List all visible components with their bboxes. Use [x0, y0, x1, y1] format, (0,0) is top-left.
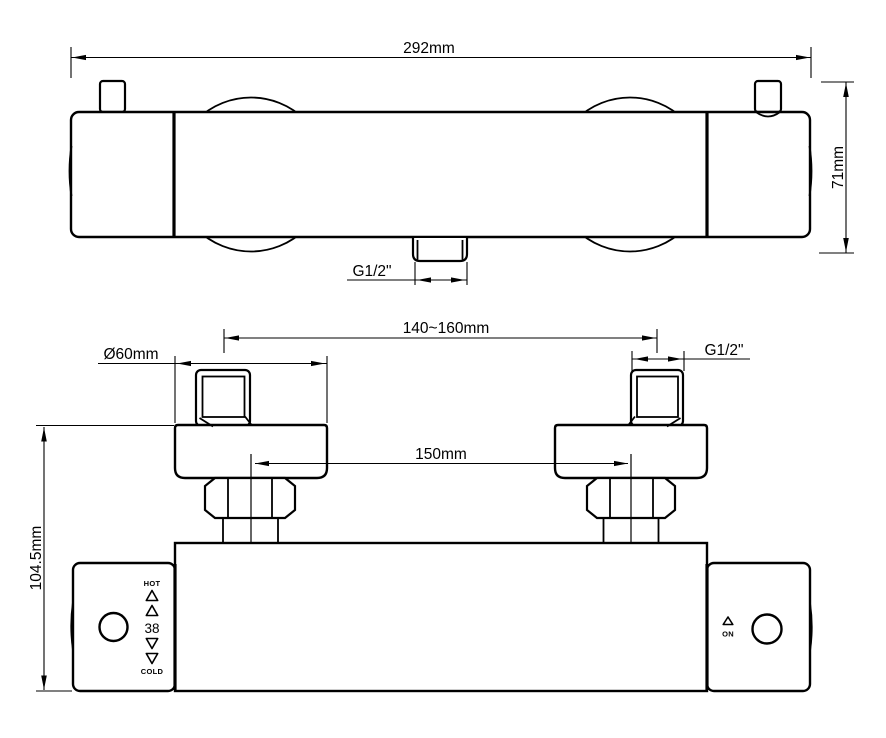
escutcheon-diameter-label: Ø60mm [103, 346, 158, 363]
outlet-thread-label: G1/2" [352, 263, 391, 280]
dim-outlet-thread: G1/2" [347, 262, 467, 285]
arrow-down-icon [843, 238, 849, 252]
inlet-spacing-range-label: 140~160mm [403, 320, 490, 337]
drawing-canvas: 292mm 71mm G1/2" [0, 0, 886, 738]
arrow-down-icon [41, 676, 47, 690]
temperature-handle-button [100, 613, 128, 641]
arrow-left-icon [225, 335, 239, 340]
front-overall-height-label: 104.5mm [28, 526, 45, 591]
overall-width-label: 292mm [403, 40, 455, 57]
hot-label: HOT [144, 579, 161, 588]
arrow-left-icon [634, 356, 648, 361]
arrow-left-icon [72, 55, 86, 60]
arrow-right-icon [668, 356, 682, 361]
dim-overall-height: 71mm [819, 82, 854, 253]
left-hex-nut [205, 478, 295, 518]
top-view: 292mm 71mm G1/2" [70, 40, 855, 285]
arrow-right-icon [311, 361, 325, 366]
arrow-left-icon [177, 361, 191, 366]
arrow-left-icon [417, 277, 431, 282]
left-knob [100, 81, 125, 112]
outlet-connector [413, 238, 467, 261]
overall-height-label: 71mm [830, 146, 847, 189]
right-knob [755, 81, 781, 112]
arrow-right-icon [796, 55, 810, 60]
valve-body-outline [71, 112, 810, 237]
arrow-right-icon [451, 277, 465, 282]
on-label: ON [722, 630, 734, 639]
dim-inlet-thread: G1/2" [632, 342, 750, 371]
technical-drawing: 292mm 71mm G1/2" [0, 0, 886, 738]
arrow-up-icon [843, 83, 849, 97]
front-view: HOT 38 COLD ON 140~160mm [28, 320, 812, 691]
arrow-up-icon [41, 428, 47, 442]
preset-temperature-label: 38 [144, 621, 159, 636]
dim-inlet-spacing-range: 140~160mm [224, 320, 657, 353]
cold-label: COLD [141, 667, 164, 676]
arrow-right-icon [642, 335, 656, 340]
valve-center-distance-label: 150mm [415, 446, 467, 463]
flow-handle-button [753, 615, 782, 644]
inlet-thread-label: G1/2" [704, 342, 743, 359]
dim-overall-width: 292mm [71, 40, 811, 78]
mixer-body [175, 543, 707, 691]
